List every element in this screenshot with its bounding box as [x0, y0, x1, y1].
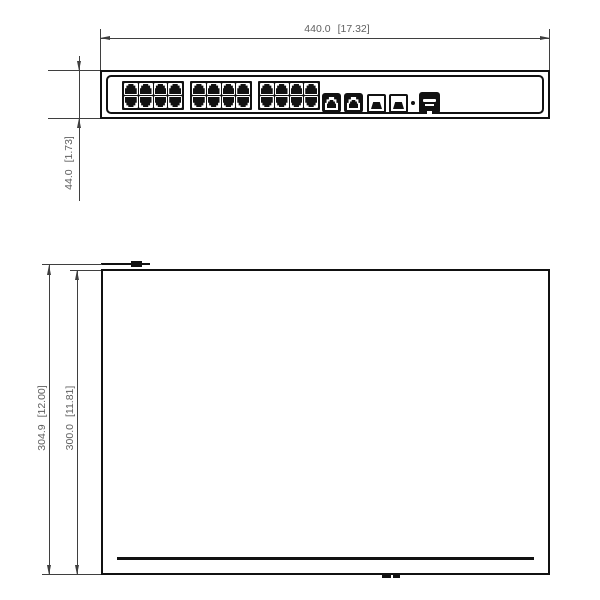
inner-depth-mm: 300.0	[64, 424, 76, 450]
arrowhead-down	[75, 565, 79, 575]
lip-tab	[131, 261, 142, 267]
inner-depth-inch: [11.81]	[64, 386, 76, 417]
dimension-drawing: 440.0 [17.32] 44.0 [1.73]	[0, 0, 600, 600]
top-view: 304.9 [12.00] 300.0 [11.81]	[0, 0, 600, 600]
outer-depth-dimension-label: 304.9 [12.00]	[36, 382, 48, 454]
inner-depth-dimension-label: 300.0 [11.81]	[64, 382, 76, 454]
arrowhead-down	[47, 565, 51, 575]
dim-line-inner-depth	[77, 270, 78, 575]
switch-body-top	[101, 269, 550, 575]
dim-line-outer-depth	[49, 265, 50, 575]
outer-depth-inch: [12.00]	[36, 385, 48, 417]
front-panel-edge-line	[117, 557, 534, 560]
arrowhead-up	[75, 270, 79, 280]
bottom-tab	[393, 574, 400, 578]
front-lip-line	[101, 263, 150, 265]
arrowhead-up	[47, 265, 51, 275]
extension-line-outer-top	[42, 264, 102, 265]
bottom-tab	[382, 574, 391, 578]
outer-depth-mm: 304.9	[36, 424, 48, 450]
